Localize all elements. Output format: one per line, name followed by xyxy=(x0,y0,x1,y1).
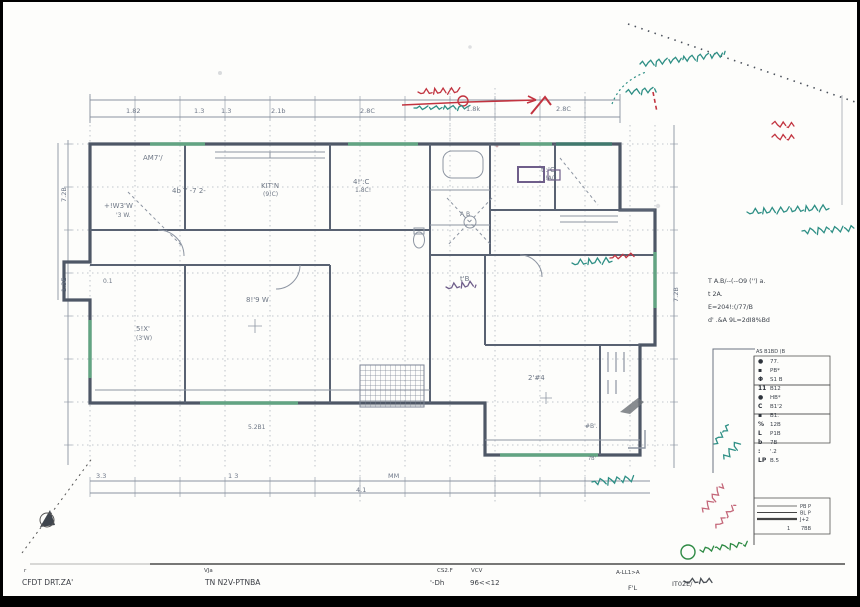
door-arc xyxy=(520,255,542,277)
scribble-teal-note-right-2 xyxy=(802,226,854,236)
room-label: (9!C) xyxy=(263,191,278,198)
dimension-label: 2.8C xyxy=(556,105,571,113)
red-tick-mark xyxy=(653,92,657,112)
room-label: t':'C xyxy=(541,166,555,174)
legend-scale-left: 1 xyxy=(787,526,790,532)
legend-row-label: 12B xyxy=(770,422,781,428)
note-line: E=204!:(/77/B xyxy=(708,304,753,311)
legend-row-label: '.2 xyxy=(770,449,777,455)
scribble-green-note-titleblock xyxy=(700,541,748,554)
legend-symbol: L xyxy=(758,430,762,437)
red-review-marks xyxy=(402,92,657,114)
stair-strokes xyxy=(608,352,624,394)
room-label: 8!'9 W xyxy=(246,296,269,304)
dimension-label: 2.8C xyxy=(360,107,375,115)
site-boundary-line xyxy=(612,24,857,205)
scribble-red-seal-2 xyxy=(772,134,794,140)
genkan-tile-hatch xyxy=(360,365,424,407)
room-label: 1.8C! xyxy=(355,187,371,194)
title-field-label: VJa xyxy=(204,568,213,574)
scribble-teal-note-right-1 xyxy=(747,205,829,216)
title-field-value: 96<<12 xyxy=(470,579,500,587)
note-line: t 2A. xyxy=(708,291,723,298)
legend-row-label: B12 xyxy=(770,386,781,392)
note-line: d' .&A 9L=2dI8%Bd xyxy=(708,317,770,324)
scribble-teal-note-legend-2 xyxy=(722,440,742,462)
scribble-teal-under-redline xyxy=(414,105,472,111)
title-field-value: TN N2V-PTNBA xyxy=(204,578,261,587)
title-field-value: '-Dh xyxy=(430,579,444,587)
legend-symbol: b xyxy=(758,439,763,446)
legend-symbol: ● xyxy=(758,358,763,365)
legend-row-label: B1'2 xyxy=(770,404,782,410)
grid-lines xyxy=(72,88,668,505)
legend-rows: ●77.▪PB*ΦS1 B11B12●HB*CB1'2▪B1.%12BLP1Bb… xyxy=(758,358,783,464)
dimension-label: 1 3 xyxy=(228,472,238,480)
legend-row-label: HB* xyxy=(770,395,781,401)
legend-line-label: PB P xyxy=(800,504,811,510)
legend-symbol: % xyxy=(758,421,764,428)
scribble-red-note-topline xyxy=(418,87,462,95)
dimension-label: 3.3 xyxy=(96,472,106,480)
legend-line-samples: PB PBL PJ+2 xyxy=(757,504,811,523)
room-label: 4!':C xyxy=(353,178,370,186)
legend-row-label: B1. xyxy=(770,413,779,419)
note-line: T A.B/--(--O9 ('') a. xyxy=(707,278,765,285)
legend-line-label: BL P xyxy=(800,511,811,517)
room-label: +!W3'W xyxy=(104,202,133,210)
title-field-label: VCV xyxy=(471,568,483,574)
scan-specks xyxy=(218,45,660,208)
dimension-label: 2.1b xyxy=(271,107,285,115)
room-label: (3'W) xyxy=(136,335,152,342)
title-field-label: CS2.F xyxy=(437,568,453,574)
dimension-label-left: 1.3E xyxy=(60,278,68,292)
room-label: AM7'/ xyxy=(143,154,163,162)
room-label: 5!X' xyxy=(136,325,150,333)
room-label: #B'. xyxy=(585,423,598,430)
legend-symbol: ● xyxy=(758,394,763,401)
dimension-label: 1.82 xyxy=(126,107,140,115)
dimension-label: 1.8k xyxy=(466,105,480,113)
scribble-red-seal-1 xyxy=(772,121,794,128)
notes-block: T A.B/--(--O9 ('') a. t 2A. E=204!:(/77/… xyxy=(707,278,770,324)
legend-line-label: J+2 xyxy=(799,517,809,523)
room-label: 5.2B1 xyxy=(248,424,266,431)
scribble-pink-note-1 xyxy=(701,483,727,515)
legend-row-label: P1B xyxy=(770,431,781,437)
legend-symbol: 11 xyxy=(758,385,766,392)
room-label: t'B xyxy=(460,275,470,283)
legend-row-label: S1 B xyxy=(770,377,783,383)
north-arrow xyxy=(22,457,93,553)
legend-row-label: B.5 xyxy=(770,458,780,464)
legend-row-label: 7B xyxy=(770,440,777,446)
scribble-teal-note-legend-1 xyxy=(712,424,730,446)
door-swing-diagonals xyxy=(128,158,598,246)
bathtub xyxy=(443,151,483,178)
dimension-label: MM xyxy=(388,472,399,480)
title-block: r CFDT DRT.ZA' VJa TN N2V-PTNBA CS2.F '-… xyxy=(22,564,845,592)
legend-symbol: LP xyxy=(758,457,767,464)
room-label: 7B' xyxy=(588,456,596,462)
scanned-floorplan-page: 1.821.31.32.1b2.8C1.8k2.8C3.31 3MM4.17.2… xyxy=(3,2,857,596)
room-label: A B xyxy=(460,211,470,218)
dimension-label: 4.1 xyxy=(356,486,366,494)
room-label: !!A() xyxy=(543,175,557,182)
dimension-label: 1.3 xyxy=(221,107,231,115)
title-field-value: IT02E/ xyxy=(672,580,693,588)
title-field-label: r xyxy=(24,568,27,574)
plan-text-labels: 1.821.31.32.1b2.8C1.8k2.8C3.31 3MM4.17.2… xyxy=(60,105,680,494)
scribble-teal-boundary-note-2 xyxy=(626,87,656,96)
dimension-label: 1.3 xyxy=(194,107,204,115)
title-field-value: CFDT DRT.ZA' xyxy=(22,578,73,587)
room-label: KIT'N xyxy=(261,182,279,190)
room-label: 0.1 xyxy=(103,278,113,285)
legend-symbol: ▪ xyxy=(758,367,762,374)
legend-header: AS B1BD (B xyxy=(756,349,786,355)
scribble-teal-boundary-note-1 xyxy=(640,51,726,68)
room-label: '3 W. xyxy=(116,212,131,219)
floor-plan-drawing: 1.821.31.32.1b2.8C1.8k2.8C3.31 3MM4.17.2… xyxy=(3,2,857,596)
legend-row-label: PB* xyxy=(770,368,780,374)
legend-table: AS B1BD (B ●77.▪PB*ΦS1 B11B12●HB*CB1'2▪B… xyxy=(713,349,830,545)
legend-symbol: : xyxy=(758,448,760,455)
handwritten-annotations xyxy=(414,51,854,584)
legend-row-label: 77. xyxy=(770,359,779,365)
green-circle-mark xyxy=(681,545,695,559)
title-field-value: F'L xyxy=(628,584,638,592)
door-arc xyxy=(276,265,300,289)
room-label: 4b Y -7 2- xyxy=(172,187,206,195)
legend-scale-right: 7BB xyxy=(801,526,812,532)
legend-symbol: ▪ xyxy=(758,412,762,419)
door-arc xyxy=(158,230,184,256)
legend-symbol: Φ xyxy=(758,376,763,383)
dimension-label-left: 7.2B xyxy=(60,187,68,202)
scribble-pink-note-2 xyxy=(714,503,737,529)
legend-symbol: C xyxy=(758,403,763,410)
room-label: 2'#4 xyxy=(528,374,545,382)
title-field-label: A-LL1>A xyxy=(616,570,640,576)
dimension-label-right: 7.2B xyxy=(672,287,680,302)
scribble-teal-note-plan xyxy=(572,257,612,266)
